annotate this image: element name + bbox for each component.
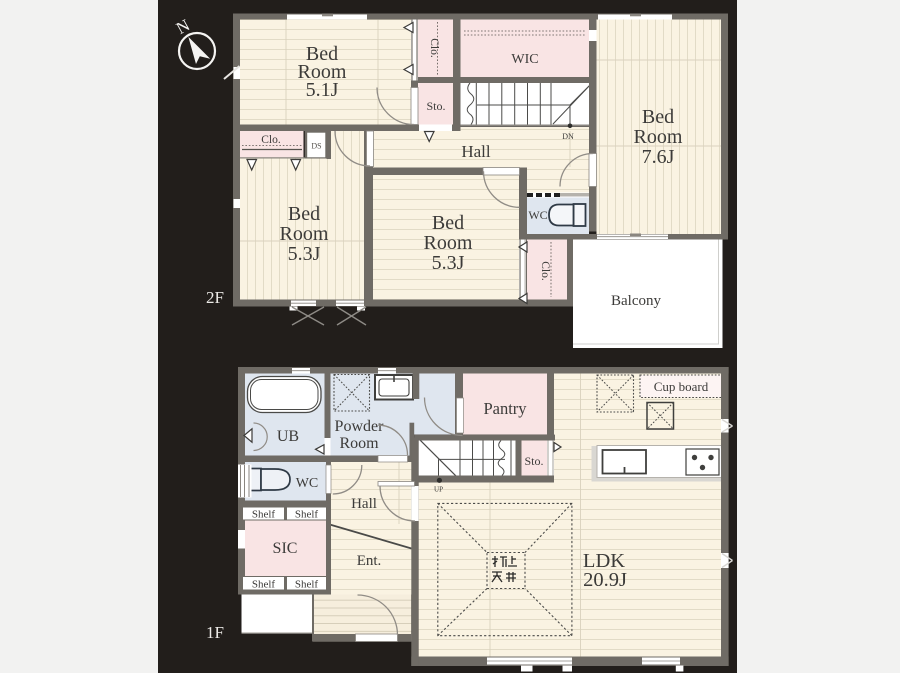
svg-text:Clo.: Clo.	[261, 134, 281, 146]
svg-text:Bed: Bed	[288, 203, 320, 225]
svg-text:Shelf: Shelf	[252, 579, 276, 591]
svg-text:WC: WC	[528, 208, 547, 222]
svg-text:Ent.: Ent.	[357, 553, 382, 569]
svg-text:WIC: WIC	[511, 52, 538, 67]
svg-text:1F: 1F	[206, 623, 224, 642]
svg-text:Clo.: Clo.	[539, 261, 551, 281]
svg-text:DS: DS	[311, 142, 321, 151]
svg-text:20.9J: 20.9J	[583, 569, 627, 591]
svg-text:Room: Room	[339, 435, 379, 452]
svg-text:Shelf: Shelf	[252, 509, 276, 521]
svg-text:Bed: Bed	[642, 106, 674, 128]
svg-text:UP: UP	[434, 486, 443, 494]
svg-text:5.3J: 5.3J	[288, 243, 321, 265]
svg-text:Room: Room	[424, 232, 473, 254]
svg-text:Sto.: Sto.	[524, 454, 543, 468]
svg-text:Room: Room	[634, 126, 683, 148]
svg-text:Clo.: Clo.	[428, 38, 440, 58]
svg-text:DN: DN	[562, 132, 574, 141]
svg-text:Cup board: Cup board	[654, 379, 709, 394]
svg-text:UB: UB	[277, 428, 299, 445]
svg-text:5.1J: 5.1J	[306, 79, 339, 101]
svg-text:2F: 2F	[206, 288, 224, 307]
svg-text:Room: Room	[280, 223, 329, 245]
svg-text:Hall: Hall	[461, 142, 491, 161]
svg-text:5.3J: 5.3J	[432, 252, 465, 274]
svg-text:SIC: SIC	[273, 540, 298, 557]
svg-text:Pantry: Pantry	[483, 399, 527, 418]
svg-text:Shelf: Shelf	[295, 579, 319, 591]
svg-text:Powder: Powder	[335, 418, 385, 435]
svg-text:Shelf: Shelf	[295, 509, 319, 521]
svg-text:Hall: Hall	[351, 496, 377, 512]
svg-text:WC: WC	[296, 476, 319, 491]
svg-text:Balcony: Balcony	[611, 293, 661, 309]
svg-text:Sto.: Sto.	[426, 99, 445, 113]
svg-text:7.6J: 7.6J	[642, 146, 675, 168]
svg-text:Bed: Bed	[432, 212, 464, 234]
